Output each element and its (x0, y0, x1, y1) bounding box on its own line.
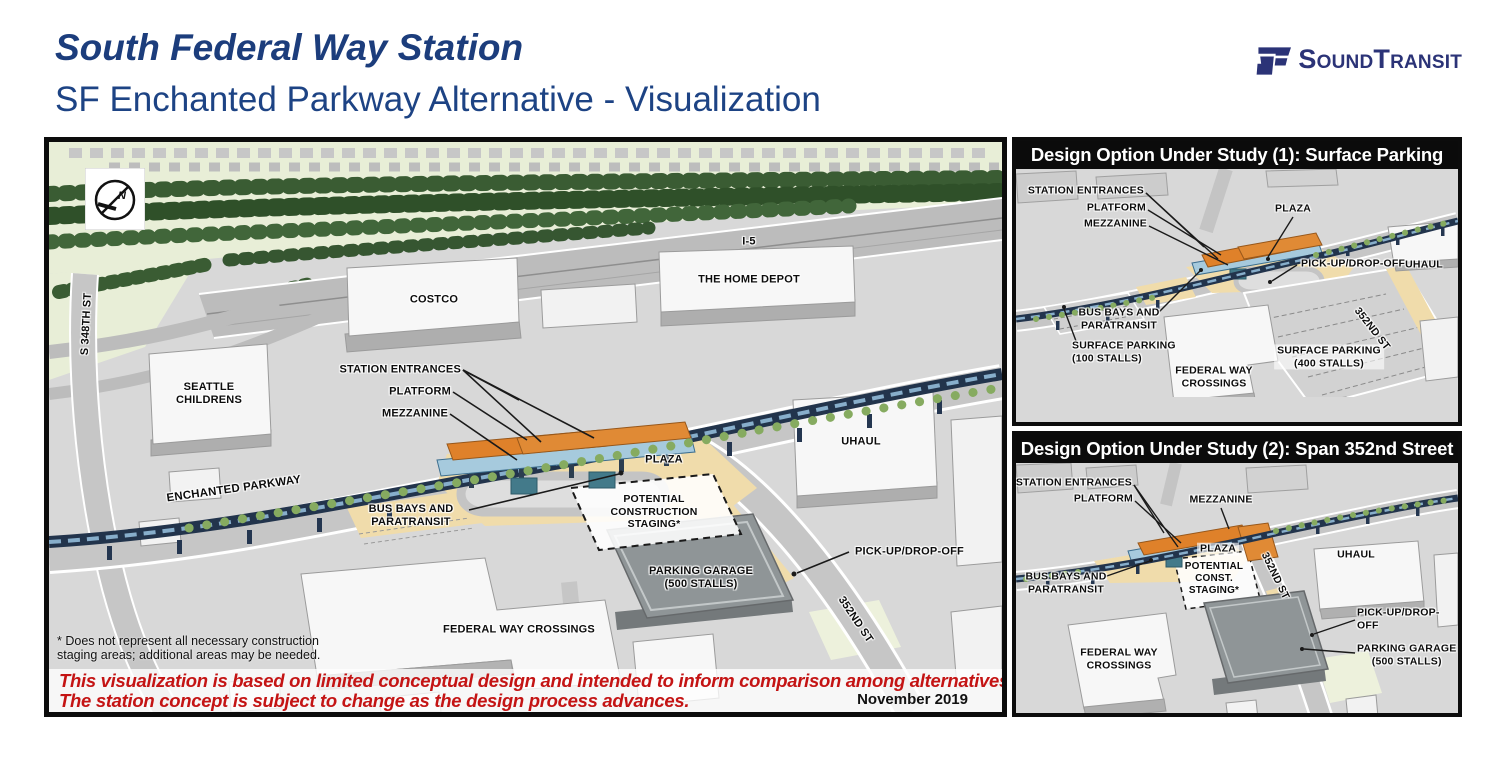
soundtransit-wordmark: SOUNDTRANSIT (1298, 42, 1462, 76)
o2-label-plaza: PLAZA (1197, 543, 1239, 556)
label-costco: COSTCO (410, 293, 458, 306)
soundtransit-logo: SOUNDTRANSIT (1251, 42, 1462, 80)
o1-label-uhaul: UHAUL (1405, 259, 1443, 272)
station-entrance-box (511, 478, 537, 494)
main-visualization-panel: N I-5 COSTCO THE HOME DEPOT SEATTLE CHIL… (44, 137, 1007, 717)
disclaimer-line-2: The station concept is subject to change… (59, 690, 689, 712)
o2-label-parking-garage: PARKING GARAGE (500 STALLS) (1357, 642, 1456, 667)
o2-label-mezzanine: MEZZANINE (1189, 494, 1252, 507)
label-i5: I-5 (742, 235, 755, 248)
design-option-1-header: Design Option Under Study (1): Surface P… (1016, 141, 1458, 169)
o2-label-uhaul: UHAUL (1337, 549, 1375, 562)
label-pickup-dropoff: PICK-UP/DROP-OFF (855, 545, 964, 558)
label-platform: PLATFORM (389, 385, 451, 398)
o2-label-staging: POTENTIAL CONST. STAGING* (1185, 561, 1243, 597)
disclaimer-line-1: This visualization is based on limited c… (59, 670, 1002, 692)
o1-label-surface-parking-400: SURFACE PARKING (400 STALLS) (1274, 344, 1384, 369)
option2-parking-garage (1204, 591, 1328, 695)
compass-n-label: N (118, 190, 127, 202)
label-station-entrances: STATION ENTRANCES (339, 363, 461, 376)
label-parking-garage: PARKING GARAGE (500 STALLS) (649, 565, 753, 591)
design-option-1-panel: Design Option Under Study (1): Surface P… (1012, 137, 1462, 426)
label-uhaul: UHAUL (841, 435, 881, 448)
label-bus-bays: BUS BAYS AND PARATRANSIT (369, 503, 454, 529)
o1-label-station-entrances: STATION ENTRANCES (1028, 185, 1144, 198)
north-arrow-icon: N (85, 168, 145, 230)
o2-label-platform: PLATFORM (1074, 493, 1133, 506)
o1-label-platform: PLATFORM (1087, 202, 1146, 215)
o1-label-surface-parking-100: SURFACE PARKING (100 STALLS) (1072, 339, 1176, 364)
slide: South Federal Way Station SF Enchanted P… (0, 0, 1500, 769)
o2-label-station-entrances: STATION ENTRANCES (1016, 477, 1132, 490)
date-label: November 2019 (857, 691, 968, 708)
disclaimer-band: This visualization is based on limited c… (49, 669, 1002, 712)
label-seattle-childrens: SEATTLE CHILDRENS (176, 381, 242, 407)
label-federal-way-crossings: FEDERAL WAY CROSSINGS (443, 623, 595, 636)
design-option-2-header: Design Option Under Study (2): Span 352n… (1016, 435, 1458, 463)
label-plaza: PLAZA (645, 453, 683, 466)
label-mezzanine: MEZZANINE (382, 407, 448, 420)
o1-label-pickup-dropoff: PICK-UP/DROP-OFF (1301, 258, 1405, 271)
o1-label-mezzanine: MEZZANINE (1084, 218, 1147, 231)
label-staging: POTENTIAL CONSTRUCTION STAGING* (611, 493, 698, 531)
design-option-2-panel: Design Option Under Study (2): Span 352n… (1012, 431, 1462, 717)
o1-label-federal-way-crossings: FEDERAL WAY CROSSINGS (1175, 364, 1252, 389)
label-home-depot: THE HOME DEPOT (698, 273, 800, 286)
o1-label-bus-bays: BUS BAYS AND PARATRANSIT (1079, 306, 1160, 331)
page-title: South Federal Way Station (55, 27, 523, 69)
o2-label-federal-way-crossings: FEDERAL WAY CROSSINGS (1080, 646, 1157, 671)
o1-label-plaza: PLAZA (1275, 203, 1311, 216)
o2-label-pickup-dropoff: PICK-UP/DROP-OFF (1357, 606, 1458, 631)
o2-label-bus-bays: BUS BAYS AND PARATRANSIT (1026, 570, 1107, 595)
soundtransit-t-icon (1251, 42, 1293, 80)
staging-footnote: * Does not represent all necessary const… (57, 634, 320, 663)
page-subtitle: SF Enchanted Parkway Alternative - Visua… (55, 80, 821, 120)
